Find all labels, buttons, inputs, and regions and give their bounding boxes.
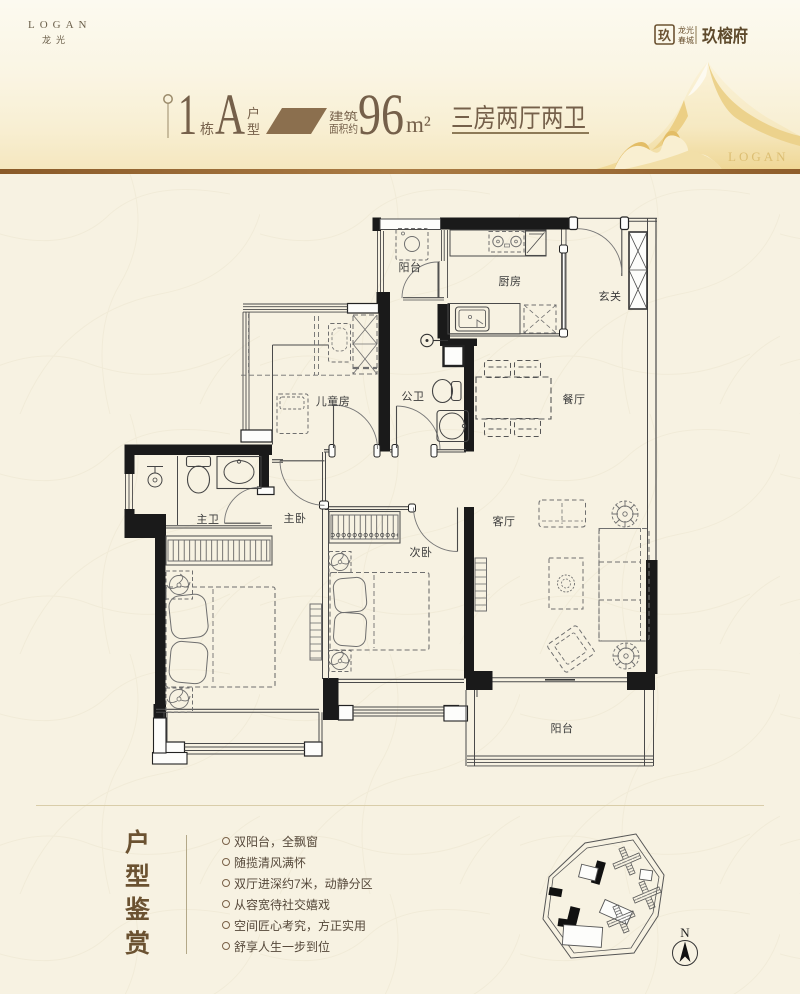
svg-text:阳台: 阳台 [551,721,574,735]
svg-text:玄关: 玄关 [599,289,622,303]
svg-text:儿童房: 儿童房 [316,394,351,408]
svg-text:厨房: 厨房 [499,275,522,288]
svg-text:公卫: 公卫 [402,391,425,403]
svg-text:客厅: 客厅 [493,514,516,528]
svg-text:次卧: 次卧 [410,545,433,559]
svg-text:餐厅: 餐厅 [563,392,586,406]
svg-text:N: N [680,925,690,940]
svg-text:主卫: 主卫 [197,513,220,526]
svg-text:主卧: 主卧 [284,512,307,525]
svg-text:阳台: 阳台 [399,260,422,274]
